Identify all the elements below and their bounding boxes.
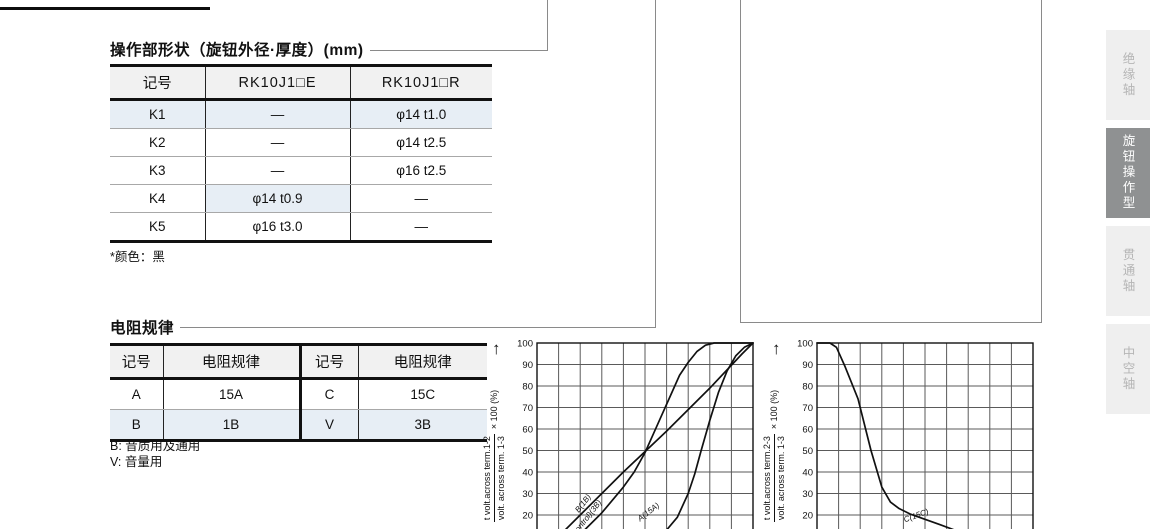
column-header: RK10J1□R <box>350 66 492 100</box>
taper-chart-1: 1009080706050403020100B(1B)control)(3B)A… <box>480 335 780 529</box>
y-tick-label: 20 <box>802 510 813 521</box>
table-cell: φ14 t2.5 <box>350 129 492 157</box>
color-note: *颜色：黑 <box>110 246 165 265</box>
table-row: K5φ16 t3.0— <box>110 213 492 242</box>
table-cell: 15C <box>358 379 487 410</box>
column-header: 电阻规律 <box>163 345 300 379</box>
table-header-row: 记号电阻规律记号电阻规律 <box>110 345 487 379</box>
y-tick-label: 100 <box>797 338 813 349</box>
table-row: B1BV3B <box>110 410 487 441</box>
table-row: K1—φ14 t1.0 <box>110 100 492 129</box>
y-tick-label: 70 <box>522 403 533 414</box>
leader-line-shape-vertical <box>547 0 548 51</box>
table-cell: K3 <box>110 157 205 185</box>
table-cell: B <box>110 410 163 441</box>
table-cell: A <box>110 379 163 410</box>
section-title-taper: 电阻规律 <box>110 316 174 338</box>
y-tick-label: 60 <box>522 424 533 435</box>
column-header: 记号 <box>110 345 163 379</box>
y-tick-label: 100 <box>517 338 533 349</box>
y-tick-label: 90 <box>522 360 533 371</box>
table-row: K2—φ14 t2.5 <box>110 129 492 157</box>
table-cell: 15A <box>163 379 300 410</box>
leader-line-shape-horizontal <box>370 50 548 51</box>
y-tick-label: 60 <box>802 424 813 435</box>
table-cell: — <box>350 185 492 213</box>
table-cell: φ16 t3.0 <box>205 213 350 242</box>
table-row: K3—φ16 t2.5 <box>110 157 492 185</box>
table-cell: V <box>300 410 358 441</box>
table-row: K4φ14 t0.9— <box>110 185 492 213</box>
chart-canvas: 1009080706050403020100B(1B)control)(3B)A… <box>480 335 780 529</box>
table-cell: — <box>205 100 350 129</box>
curve-label: A(15A) <box>635 501 661 524</box>
sidebar-tab-4[interactable]: 中空轴 <box>1106 324 1150 414</box>
leader-line-taper-horizontal <box>180 327 656 328</box>
catalog-page: 操作部形状（旋钮外径·厚度）(mm) 记号RK10J1□ERK10J1□R K1… <box>0 0 1150 529</box>
table-cell: — <box>205 129 350 157</box>
leader-line-taper-vertical <box>655 0 656 327</box>
column-header: RK10J1□E <box>205 66 350 100</box>
section-title-shape: 操作部形状（旋钮外径·厚度）(mm) <box>110 38 364 60</box>
table-cell: C <box>300 379 358 410</box>
y-tick-label: 30 <box>522 489 533 500</box>
y-tick-label: 80 <box>802 381 813 392</box>
taper-note-v: V: 音量用 <box>110 454 200 470</box>
y-tick-label: 80 <box>522 381 533 392</box>
taper-chart-2: 1009080706050403020100C(15C) <box>760 335 1060 529</box>
table-cell: φ14 t0.9 <box>205 185 350 213</box>
table-cell: φ14 t1.0 <box>350 100 492 129</box>
y-tick-label: 70 <box>802 403 813 414</box>
column-header: 记号 <box>300 345 358 379</box>
table-cell: 3B <box>358 410 487 441</box>
top-banner-edge <box>0 7 210 10</box>
column-header: 记号 <box>110 66 205 100</box>
sidebar-tab-1[interactable]: 绝缘轴 <box>1106 30 1150 120</box>
table-cell: — <box>205 157 350 185</box>
table-cell: — <box>350 213 492 242</box>
table-cell: K2 <box>110 129 205 157</box>
column-header: 电阻规律 <box>358 345 487 379</box>
table-cell: φ16 t2.5 <box>350 157 492 185</box>
y-tick-label: 40 <box>802 467 813 478</box>
y-tick-label: 90 <box>802 360 813 371</box>
table-cell: K1 <box>110 100 205 129</box>
y-tick-label: 40 <box>522 467 533 478</box>
sidebar-tab-2[interactable]: 旋钮操作型 <box>1106 128 1150 218</box>
table-cell: K4 <box>110 185 205 213</box>
shape-table: 记号RK10J1□ERK10J1□R K1—φ14 t1.0K2—φ14 t2.… <box>110 64 492 243</box>
chart-canvas: 1009080706050403020100C(15C) <box>760 335 1060 529</box>
taper-note-b: B: 音质用及通用 <box>110 438 200 454</box>
y-tick-label: 30 <box>802 489 813 500</box>
y-tick-label: 50 <box>522 446 533 457</box>
drawing-placeholder-box <box>740 0 1042 323</box>
table-header-row: 记号RK10J1□ERK10J1□R <box>110 66 492 100</box>
y-tick-label: 20 <box>522 510 533 521</box>
taper-notes: B: 音质用及通用 V: 音量用 <box>110 438 200 470</box>
curve-label: C(15C) <box>902 507 930 524</box>
table-row: A15AC15C <box>110 379 487 410</box>
table-cell: K5 <box>110 213 205 242</box>
taper-table: 记号电阻规律记号电阻规律 A15AC15CB1BV3B <box>110 343 487 442</box>
table-cell: 1B <box>163 410 300 441</box>
y-tick-label: 50 <box>802 446 813 457</box>
sidebar-tab-3[interactable]: 贯通轴 <box>1106 226 1150 316</box>
